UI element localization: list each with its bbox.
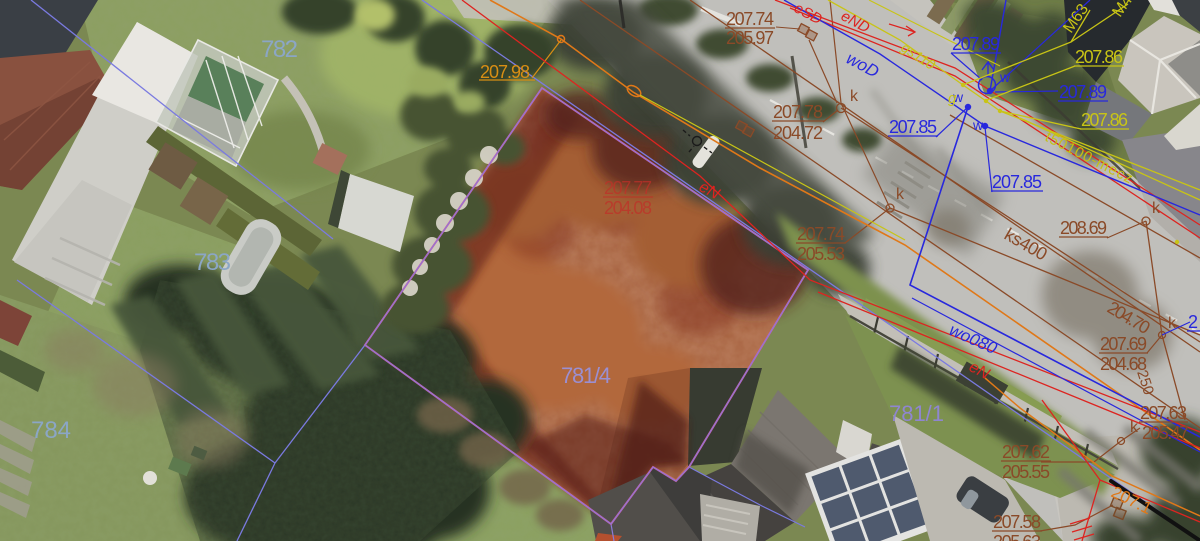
svg-text:782: 782 [261,36,298,63]
svg-text:207.89: 207.89 [952,34,1000,54]
svg-text:207.78: 207.78 [773,102,823,122]
svg-text:k: k [850,88,859,105]
svg-text:207.58: 207.58 [993,512,1041,532]
svg-text:204.72: 204.72 [773,123,823,143]
svg-text:207.62: 207.62 [1002,442,1050,462]
svg-text:205.53: 205.53 [797,244,845,264]
svg-text:781/4: 781/4 [561,363,611,388]
svg-text:783: 783 [194,249,231,276]
svg-text:207.74: 207.74 [797,224,845,244]
svg-text:207.98: 207.98 [480,62,530,82]
svg-text:w: w [999,69,1011,85]
svg-text:205.47: 205.47 [1142,423,1189,443]
svg-text:205.55: 205.55 [1002,462,1050,482]
svg-text:g: g [948,90,957,107]
svg-text:208.69: 208.69 [1060,218,1107,238]
svg-text:207.89: 207.89 [1059,82,1107,102]
svg-text:207.85: 207.85 [992,172,1042,192]
svg-text:207.85: 207.85 [889,117,937,137]
svg-text:k: k [1130,419,1139,436]
svg-text:207.86: 207.86 [1081,110,1128,130]
svg-text:207.77: 207.77 [604,178,652,198]
svg-text:k: k [1168,315,1177,332]
svg-text:784: 784 [31,417,71,444]
svg-text:204.08: 204.08 [604,198,652,218]
svg-text:w: w [972,117,984,133]
svg-text:207.74: 207.74 [726,9,774,29]
svg-text:k: k [896,186,905,203]
svg-text:207.69: 207.69 [1100,334,1147,354]
svg-text:207.86: 207.86 [1075,47,1123,67]
svg-text:205.97: 205.97 [726,28,774,48]
svg-text:2: 2 [1188,312,1198,332]
svg-text:k: k [1152,200,1161,217]
svg-text:205.63: 205.63 [993,532,1041,541]
svg-text:781/1: 781/1 [889,401,944,426]
svg-text:207.63: 207.63 [1140,403,1187,423]
